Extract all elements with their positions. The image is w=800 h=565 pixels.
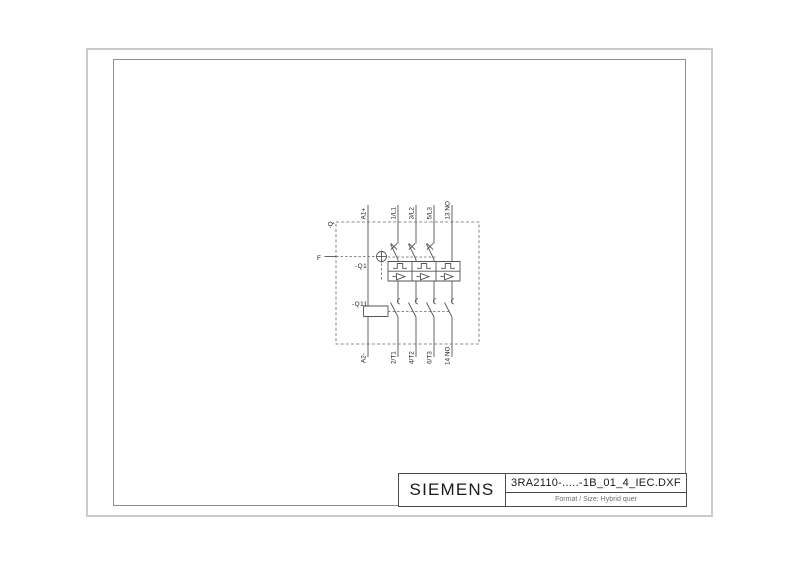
breaker-label: -Q1: [355, 263, 367, 270]
operator-label: F: [317, 255, 321, 262]
terminal-label-1l1: 1/L1: [391, 207, 398, 220]
breaker-contacts-group: [388, 243, 437, 259]
schematic-svg: -Q F -Q1 -Q11 A1+ 1/L1 3/L2 5/L3 13 NO A…: [310, 188, 490, 373]
contact-pivot-arc: [415, 299, 418, 304]
drawing-sheet: -Q F -Q1 -Q11 A1+ 1/L1 3/L2 5/L3 13 NO A…: [0, 0, 800, 565]
terminal-label-14no: 14 NO: [445, 347, 452, 365]
contact-pivot-arc: [451, 299, 454, 304]
terminal-label-3l2: 3/L2: [409, 207, 416, 220]
contactor-group: [364, 299, 455, 317]
contact-pivot-arc: [433, 299, 436, 304]
contact-pivot-arc: [397, 299, 400, 304]
device-boundary-dashed-box: [336, 222, 479, 344]
contactor-label: -Q11: [352, 301, 368, 308]
drawing-filename: 3RA2110-.....-1B_01_4_IEC.DXF: [506, 474, 686, 493]
format-size-label: Format / Size: Hybrid quer: [506, 493, 686, 506]
terminal-label-a2: A2-: [361, 353, 368, 363]
terminal-label-a1: A1+: [361, 208, 368, 220]
terminal-label-6t3: 6/T3: [427, 351, 434, 364]
terminal-label-4t2: 4/T2: [409, 351, 416, 364]
terminal-label-13no: 13 NO: [445, 201, 452, 219]
title-block-file-cell: 3RA2110-.....-1B_01_4_IEC.DXF Format / S…: [506, 474, 686, 506]
siemens-logo: SIEMENS: [399, 474, 506, 506]
title-block: SIEMENS 3RA2110-.....-1B_01_4_IEC.DXF Fo…: [398, 473, 687, 507]
frame-label: -Q: [328, 221, 335, 228]
trip-unit-group: [388, 262, 460, 282]
terminal-label-2t1: 2/T1: [391, 351, 398, 364]
terminal-label-5l3: 5/L3: [427, 207, 434, 220]
